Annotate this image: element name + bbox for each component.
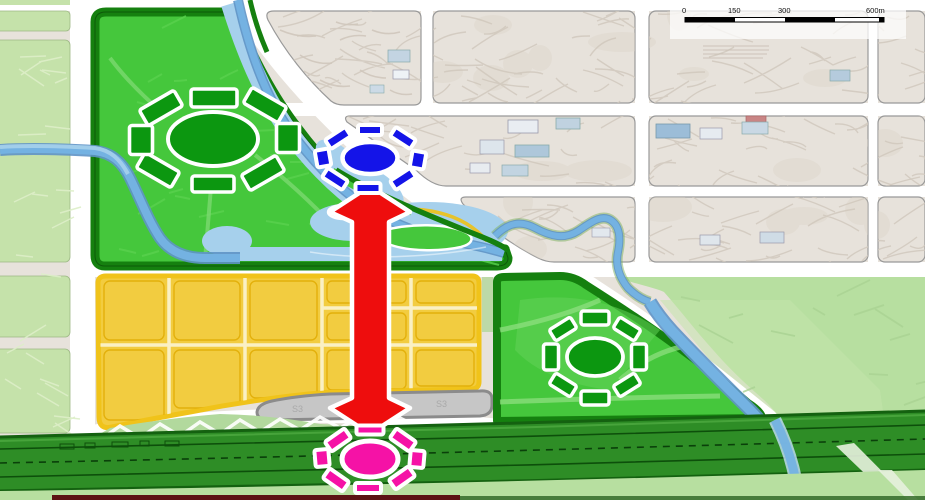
svg-text:150: 150 — [728, 6, 741, 15]
svg-text:S3: S3 — [292, 404, 303, 414]
svg-text:600m: 600m — [866, 6, 885, 15]
svg-text:0: 0 — [682, 6, 686, 15]
svg-text:S3: S3 — [436, 399, 447, 409]
svg-text:300: 300 — [778, 6, 791, 15]
